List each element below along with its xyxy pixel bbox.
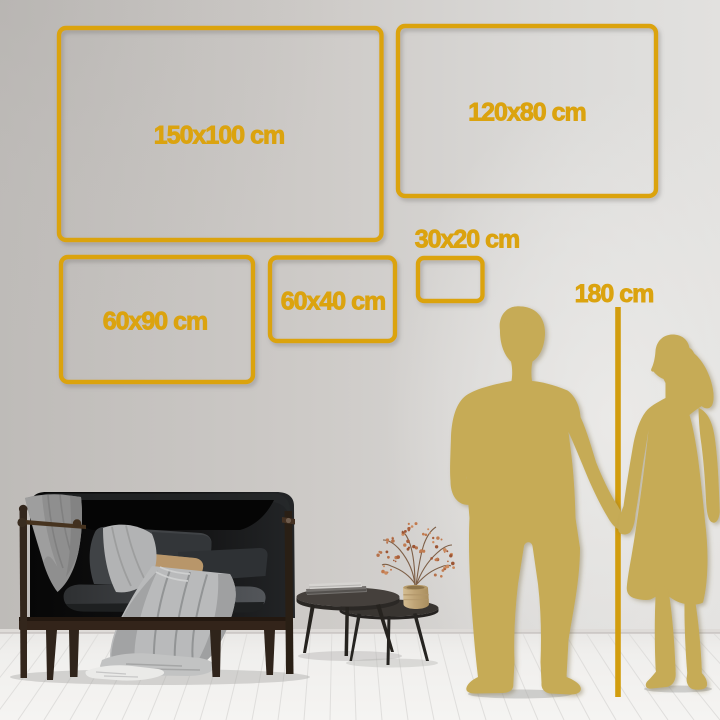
svg-text:60x40 cm: 60x40 cm (281, 288, 386, 316)
svg-text:60x90 cm: 60x90 cm (103, 308, 208, 336)
svg-text:30x20 cm: 30x20 cm (415, 226, 520, 254)
svg-text:120x80 cm: 120x80 cm (468, 99, 586, 127)
svg-text:180 cm: 180 cm (575, 280, 654, 308)
svg-text:150x100 cm: 150x100 cm (154, 122, 284, 150)
